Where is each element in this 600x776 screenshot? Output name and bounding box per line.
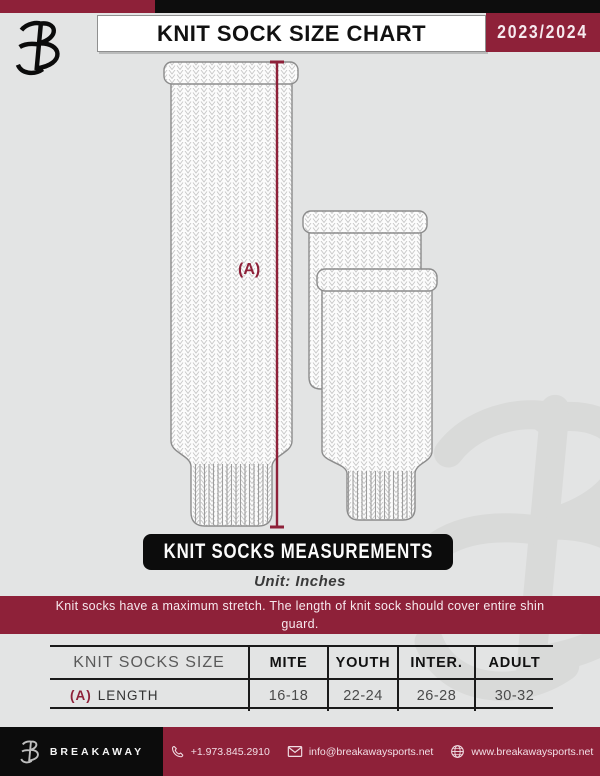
footer: BREAKAWAY +1.973.845.2910 info@breakaway… — [0, 727, 600, 776]
top-strip-red — [0, 0, 155, 13]
table-header-mite: MITE — [248, 647, 327, 680]
footer-brand: BREAKAWAY — [0, 727, 163, 776]
size-table: KNIT SOCKS SIZE MITE YOUTH INTER. ADULT … — [50, 645, 553, 709]
stretch-note-band: Knit socks have a maximum stretch. The l… — [0, 596, 600, 634]
table-value-adult: 30-32 — [474, 680, 553, 711]
size-chart-page: KNIT SOCK SIZE CHART 2023/2024 — [0, 0, 600, 776]
contact-phone: +1.973.845.2910 — [170, 744, 270, 759]
sock-diagram: (A) — [0, 52, 600, 536]
phone-icon — [170, 744, 185, 759]
unit-label: Unit: Inches — [0, 573, 600, 590]
sock-front — [317, 269, 437, 520]
table-header-size: KNIT SOCKS SIZE — [50, 647, 248, 680]
breakaway-logo-small-icon — [19, 738, 43, 765]
page-title: KNIT SOCK SIZE CHART — [157, 21, 426, 47]
measurements-banner: KNIT SOCKS MEASUREMENTS — [143, 534, 453, 570]
row-label-length: LENGTH — [98, 688, 159, 703]
table-header-inter: INTER. — [397, 647, 474, 680]
footer-contacts: +1.973.845.2910 info@breakawaysports.net… — [163, 727, 600, 776]
globe-icon — [450, 744, 465, 759]
table-value-youth: 22-24 — [327, 680, 397, 711]
stretch-note-text: Knit socks have a maximum stretch. The l… — [50, 597, 550, 633]
measure-label-a: (A) — [238, 261, 260, 278]
brand-name: BREAKAWAY — [50, 746, 144, 758]
contact-website: www.breakawaysports.net — [450, 744, 593, 759]
table-value-mite: 16-18 — [248, 680, 327, 711]
contact-email: info@breakawaysports.net — [287, 745, 433, 758]
table-value-inter: 26-28 — [397, 680, 474, 711]
season-badge: 2023/2024 — [486, 13, 600, 52]
top-strip-black — [0, 0, 600, 13]
email-icon — [287, 745, 303, 758]
measurements-banner-label: KNIT SOCKS MEASUREMENTS — [163, 540, 432, 564]
table-row-label: (A) LENGTH — [50, 680, 248, 711]
page-title-box: KNIT SOCK SIZE CHART — [97, 15, 486, 52]
table-header-adult: ADULT — [474, 647, 553, 680]
row-prefix-a: (A) — [70, 688, 92, 703]
season-label: 2023/2024 — [498, 22, 589, 43]
table-header-youth: YOUTH — [327, 647, 397, 680]
